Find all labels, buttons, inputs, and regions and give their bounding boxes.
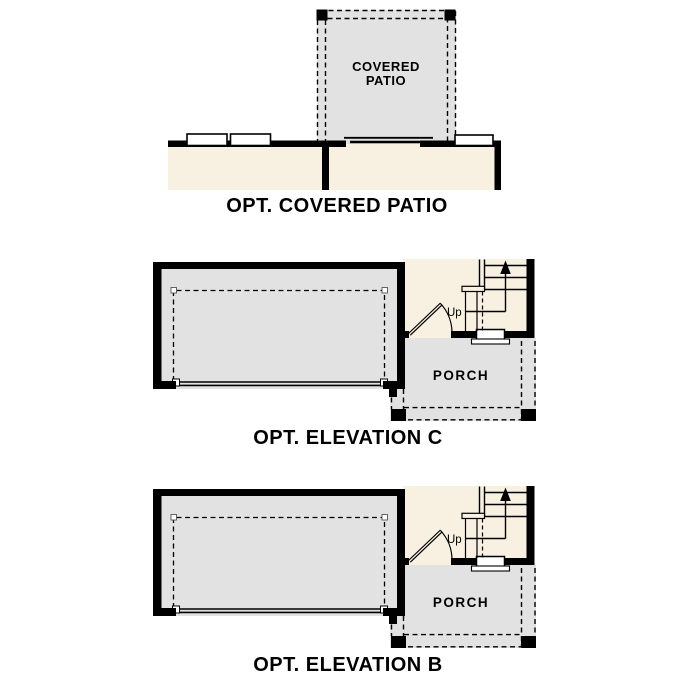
patio-post-right	[445, 10, 456, 21]
porch-room-label: PORCH	[433, 368, 489, 383]
elevation-c-caption: OPT. ELEVATION C	[253, 427, 443, 449]
entry-wall-bottom-right	[504, 331, 535, 338]
patio-post-left	[317, 10, 328, 21]
garage-wall-left	[153, 262, 162, 389]
patio-room-label-line1: COVERED	[352, 59, 420, 74]
garage-floor	[153, 489, 405, 616]
garage-floor	[153, 262, 405, 389]
garage-entry-divider-wall	[397, 489, 405, 615]
entry-wall-bottom-middle	[451, 331, 477, 338]
dashed-corner-marker	[171, 515, 177, 521]
floorplan-canvas: COVERED PATIO OPT. COVERED PATIO	[0, 0, 687, 687]
entry-wall-bottom-right	[504, 558, 535, 565]
elevation-b-caption: OPT. ELEVATION B	[253, 654, 443, 676]
window-symbol	[455, 135, 493, 146]
exterior-wall-patio-right-stub	[420, 141, 456, 148]
stairs-up-label: Up	[447, 307, 462, 319]
covered-patio-plan: COVERED PATIO OPT. COVERED PATIO	[168, 10, 501, 218]
dashed-corner-marker	[382, 515, 388, 521]
porch-room-label: PORCH	[433, 595, 489, 610]
stair-landing-edge	[462, 286, 485, 291]
porch-post-left	[391, 409, 406, 421]
interior-wall-vertical	[322, 141, 329, 191]
window-symbol	[187, 134, 227, 146]
exterior-wall-right-return	[495, 141, 502, 191]
house-interior-floor	[168, 144, 501, 190]
porch-post-left	[391, 636, 406, 648]
garage-wall-top	[153, 489, 405, 496]
elevation-c-plan: Up PORCH	[153, 259, 536, 421]
stair-landing-edge	[462, 513, 485, 518]
garage-wall-top	[153, 262, 405, 269]
garage-wall-bottom-left-stub	[153, 381, 176, 389]
garage-wall-bottom-left-stub	[153, 608, 176, 616]
porch-post-right	[521, 636, 536, 648]
floorplan-sheet: COVERED PATIO OPT. COVERED PATIO	[0, 0, 687, 687]
stairs-up-label: Up	[447, 534, 462, 546]
garage-porch-corner-stub	[389, 615, 397, 624]
window-symbol	[231, 134, 271, 146]
entry-wall-right	[527, 259, 535, 338]
covered-patio-caption: OPT. COVERED PATIO	[226, 195, 448, 217]
garage-porch-corner-stub	[389, 388, 397, 397]
patio-room-label-line2: PATIO	[366, 73, 406, 88]
porch-post-right	[521, 409, 536, 421]
window-symbol	[477, 330, 505, 340]
garage-entry-divider-wall	[397, 262, 405, 388]
window-sill	[472, 339, 510, 344]
window-symbol	[477, 557, 505, 567]
entry-floor	[403, 486, 534, 565]
elevation-b-plan: Up PORCH	[153, 486, 536, 648]
entry-wall-bottom-left	[397, 331, 409, 338]
entry-wall-right	[527, 486, 535, 565]
entry-wall-bottom-left	[397, 558, 409, 565]
garage-wall-left	[153, 489, 162, 616]
window-sill	[472, 566, 510, 571]
entry-floor	[403, 259, 534, 338]
entry-wall-bottom-middle	[451, 558, 477, 565]
dashed-corner-marker	[171, 288, 177, 294]
dashed-corner-marker	[382, 288, 388, 294]
